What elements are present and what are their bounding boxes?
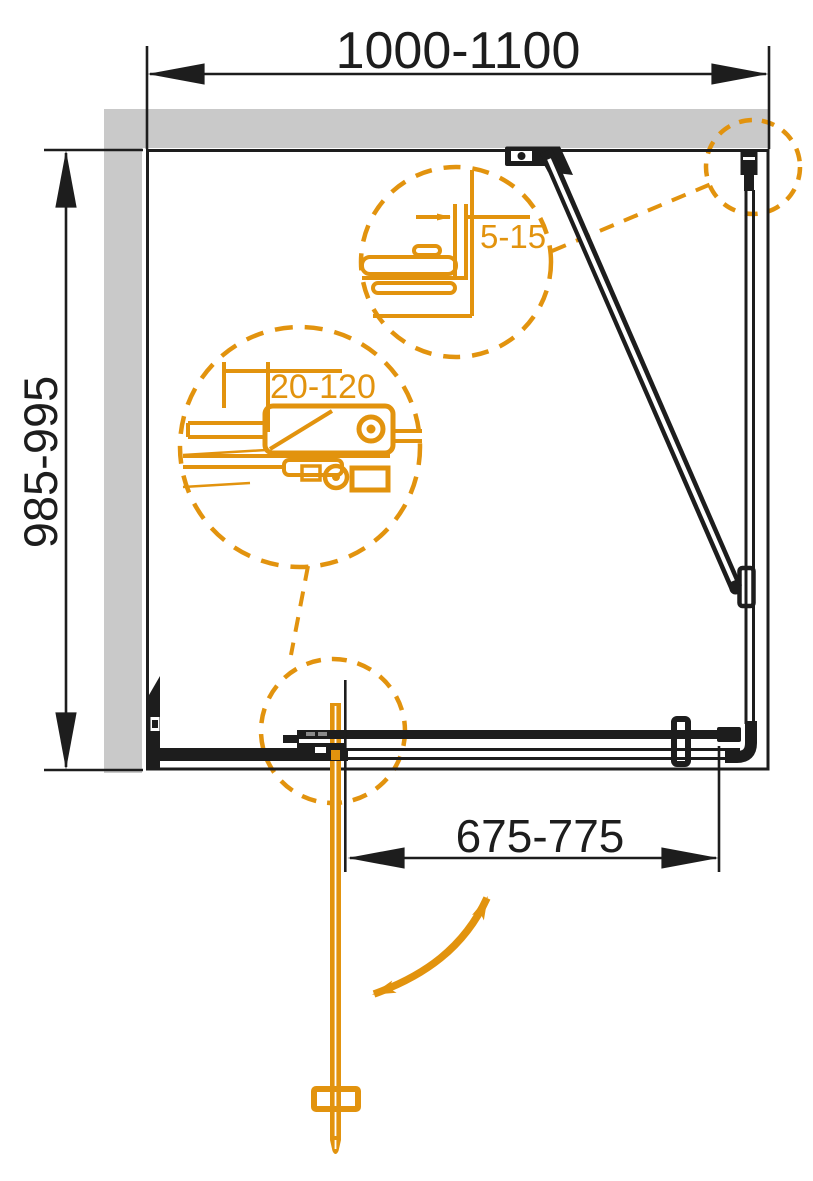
dimension-door-opening-label: 675-775 [456,810,625,862]
detail-callouts: 5-15 20-120 [180,120,800,803]
detail-gap-label: 5-15 [480,218,546,255]
leader-line-to-pivot [291,566,308,655]
fixed-glass-line [752,190,755,724]
detail-circle-adjustment [180,327,420,567]
bottom-assembly [149,676,741,1154]
fixed-glass-line [745,190,748,724]
diagram-page: 5-15 20-120 [0,0,813,1181]
left-wall [104,109,142,773]
dimension-height-label: 985-995 [14,376,67,549]
fixed-panel [725,151,758,757]
dimension-width-label: 1000-1100 [336,22,581,80]
rail-end-cap [717,727,741,742]
top-wall [104,109,770,148]
door-pivot-axis-line [344,680,347,872]
support-bar [505,147,742,595]
wall-profile-top-right [741,151,758,175]
detail-adjustment-label: 20-120 [270,368,376,406]
shower-enclosure-top-view-drawing: 5-15 20-120 [0,0,813,1181]
door-swing-arrow [374,898,487,994]
